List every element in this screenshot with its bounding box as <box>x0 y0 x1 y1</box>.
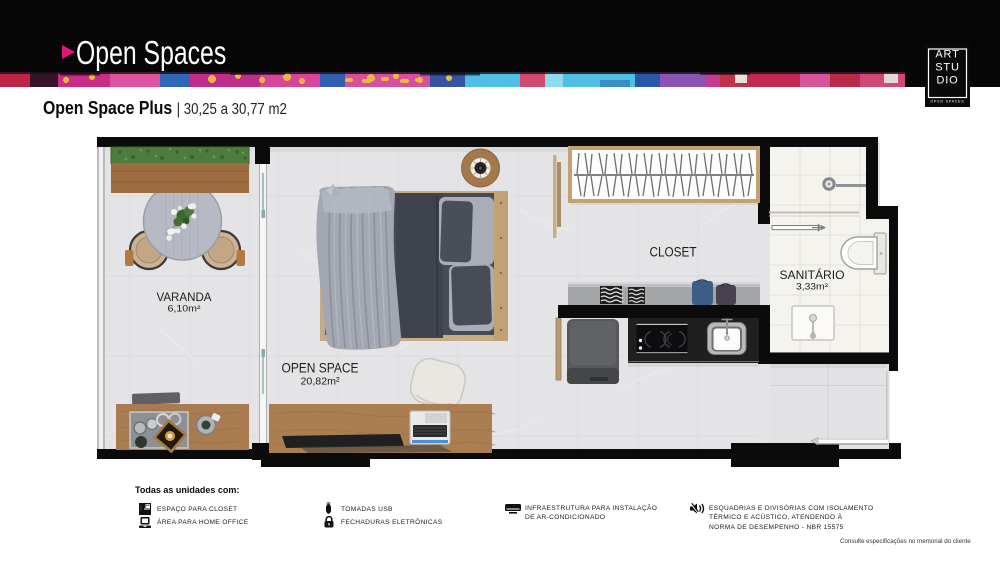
svg-text:OPEN SPACE: OPEN SPACE <box>282 361 359 376</box>
svg-text:SANITÁRIO: SANITÁRIO <box>780 267 845 282</box>
svg-text:6,10m²: 6,10m² <box>168 304 201 314</box>
svg-text:20,82m²: 20,82m² <box>301 377 341 388</box>
svg-text:3,33m²: 3,33m² <box>796 282 828 292</box>
svg-text:VARANDA: VARANDA <box>157 290 212 304</box>
svg-text:CLOSET: CLOSET <box>650 245 697 260</box>
